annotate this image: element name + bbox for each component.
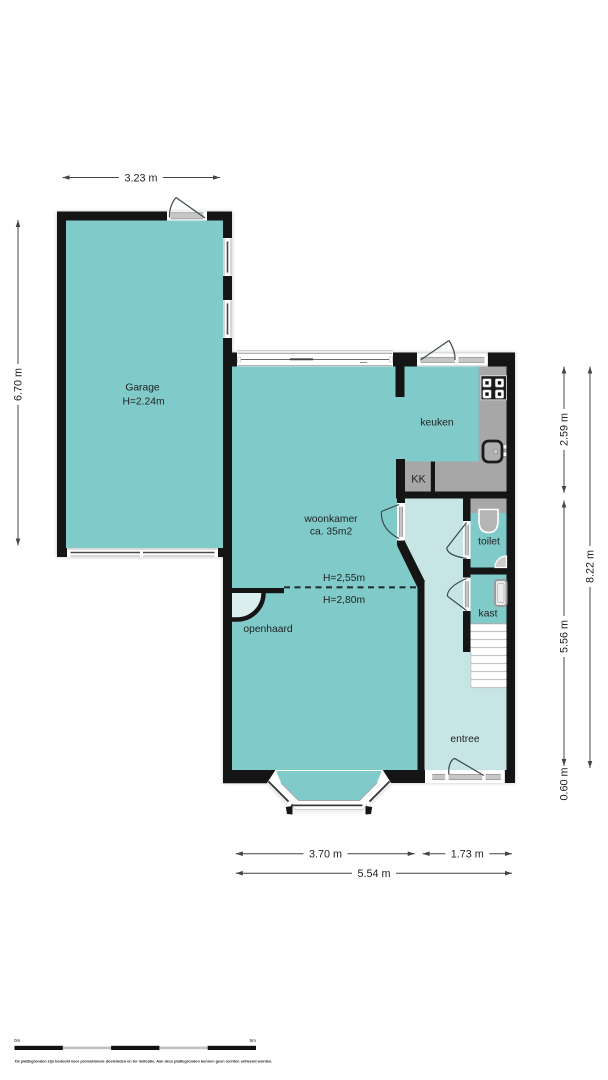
svg-text:3.70 m: 3.70 m — [309, 849, 342, 861]
svg-text:toilet: toilet — [478, 537, 500, 548]
svg-text:5m: 5m — [250, 1038, 257, 1043]
svg-text:De plattegronden zijn bedoeld: De plattegronden zijn bedoeld voor promo… — [15, 1059, 272, 1063]
svg-text:ca. 35m2: ca. 35m2 — [310, 527, 353, 538]
svg-text:Garage: Garage — [125, 383, 160, 394]
svg-text:0.60 m: 0.60 m — [559, 767, 571, 800]
svg-text:0m: 0m — [14, 1038, 21, 1043]
svg-text:5.54 m: 5.54 m — [357, 868, 390, 880]
svg-text:6.70 m: 6.70 m — [13, 368, 25, 401]
svg-text:2.59 m: 2.59 m — [559, 413, 571, 446]
svg-text:1.73 m: 1.73 m — [451, 849, 484, 861]
svg-text:H=2,80m: H=2,80m — [323, 595, 365, 606]
svg-text:keuken: keuken — [420, 418, 453, 429]
svg-text:kast: kast — [479, 609, 498, 620]
svg-text:H=2.24m: H=2.24m — [122, 397, 164, 408]
svg-text:openhaard: openhaard — [243, 624, 293, 635]
svg-text:H=2,55m: H=2,55m — [323, 573, 365, 584]
svg-text:KK: KK — [411, 474, 426, 486]
svg-text:5.56 m: 5.56 m — [559, 620, 571, 653]
svg-text:8.22 m: 8.22 m — [585, 550, 597, 583]
svg-text:entree: entree — [450, 734, 479, 745]
svg-text:woonkamer: woonkamer — [303, 514, 358, 525]
svg-text:3.23 m: 3.23 m — [124, 172, 157, 184]
